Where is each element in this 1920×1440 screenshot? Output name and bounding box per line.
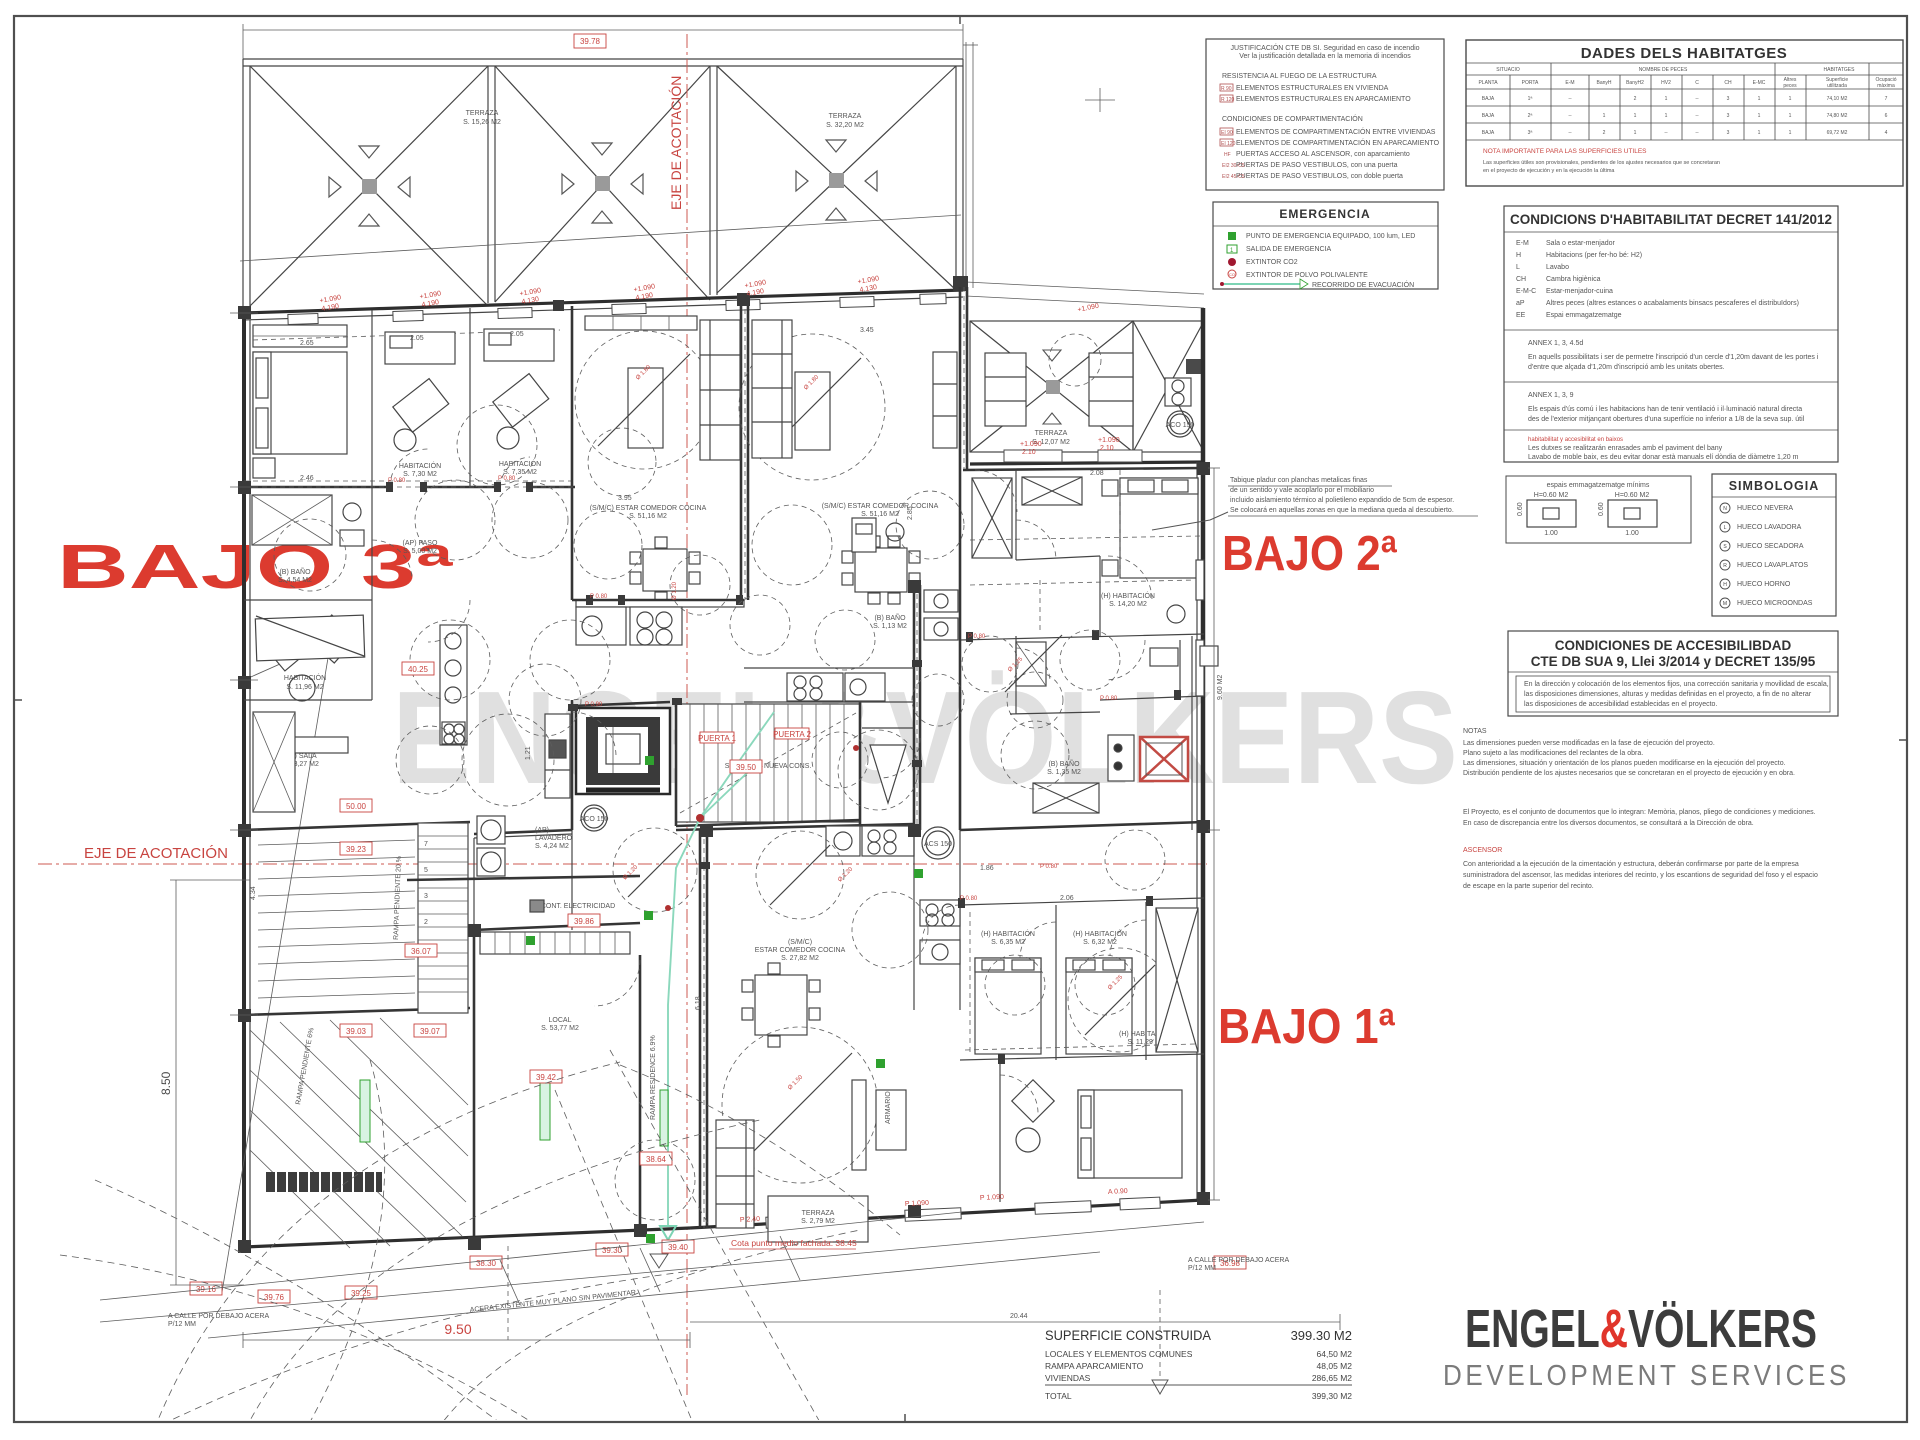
svg-text:HUECO HORNO: HUECO HORNO — [1737, 581, 1791, 588]
svg-text:SUPERFICIE CONSTRUIDA: SUPERFICIE CONSTRUIDA — [1045, 1328, 1211, 1343]
svg-text:+1.090: +1.090 — [1098, 437, 1120, 444]
svg-text:(H) HABITACIÓN: (H) HABITACIÓN — [981, 929, 1035, 938]
svg-text:peces: peces — [1783, 83, 1797, 89]
svg-text:ACO 150: ACO 150 — [1166, 422, 1195, 429]
svg-text:VIVIENDAS: VIVIENDAS — [1045, 1373, 1091, 1383]
svg-text:E-M: E-M — [1516, 240, 1529, 247]
svg-text:L: L — [1516, 264, 1520, 271]
svg-text:2.46: 2.46 — [300, 475, 314, 482]
svg-text:(S/M/C) ESTAR COMEDOR COCINA: (S/M/C) ESTAR COMEDOR COCINA — [590, 505, 707, 512]
svg-text:(H) HABITACIÓN: (H) HABITACIÓN — [1073, 929, 1127, 938]
svg-text:0.60: 0.60 — [1598, 502, 1605, 516]
svg-text:P/12 MM: P/12 MM — [168, 1321, 196, 1328]
svg-text:S. 53,77 M2: S. 53,77 M2 — [541, 1025, 579, 1032]
svg-text:--: -- — [1695, 130, 1699, 136]
svg-text:R 120: R 120 — [1221, 97, 1235, 103]
svg-text:TERRAZA: TERRAZA — [802, 1210, 835, 1217]
svg-text:1.00: 1.00 — [1625, 530, 1639, 537]
svg-text:PUERTAS ACCESO AL ASCENSOR, co: PUERTAS ACCESO AL ASCENSOR, con aparcami… — [1236, 151, 1410, 158]
svg-text:Habitacions (per fer-ho bé: H2: Habitacions (per fer-ho bé: H2) — [1546, 252, 1642, 259]
svg-text:BAJA: BAJA — [1482, 130, 1495, 136]
svg-text:(B) BAÑO: (B) BAÑO — [874, 613, 906, 622]
svg-text:Les dutxes se realitzarán enra: Les dutxes se realitzarán enrasades amb … — [1528, 445, 1723, 452]
svg-text:Ø 1.20: Ø 1.20 — [672, 581, 678, 600]
svg-text:Distribución pendiente de los: Distribución pendiente de los ajustes ne… — [1463, 770, 1795, 777]
svg-text:1: 1 — [1665, 96, 1668, 102]
svg-text:P 2.40: P 2.40 — [740, 1216, 761, 1224]
svg-text:Espai emmagatzematge: Espai emmagatzematge — [1546, 312, 1622, 319]
svg-text:Se colocará en aquellas zonas: Se colocará en aquellas zonas en que la … — [1230, 507, 1454, 514]
svg-text:utilitzada: utilitzada — [1827, 83, 1847, 89]
svg-text:JUSTIFICACIÓN CTE DB SI. Segur: JUSTIFICACIÓN CTE DB SI. Seguridad en ca… — [1230, 43, 1419, 52]
svg-text:aP: aP — [1516, 300, 1525, 307]
svg-text:--: -- — [1568, 113, 1572, 119]
svg-text:39.07: 39.07 — [420, 1027, 441, 1036]
svg-text:RAMPA RESIDENCE 6.9%: RAMPA RESIDENCE 6.9% — [650, 1035, 657, 1120]
svg-text:P 0.80: P 0.80 — [960, 896, 978, 902]
svg-text:Altres peces (altres estances: Altres peces (altres estances o acabalam… — [1546, 300, 1799, 307]
svg-text:ACO 150: ACO 150 — [580, 816, 609, 823]
svg-text:50.00: 50.00 — [346, 802, 367, 811]
svg-text:EMERGENCIA: EMERGENCIA — [1279, 207, 1370, 221]
svg-text:+1.090: +1.090 — [1020, 441, 1042, 448]
svg-text:ARMARIO: ARMARIO — [885, 1091, 892, 1124]
svg-text:las disposiciones dimensiones,: las disposiciones dimensiones, alturas y… — [1524, 691, 1812, 698]
svg-text:ESTAR COMEDOR COCINA: ESTAR COMEDOR COCINA — [755, 947, 846, 954]
svg-text:(S/M/C) ESTAR COMEDOR COCINA: (S/M/C) ESTAR COMEDOR COCINA — [822, 503, 939, 510]
svg-text:HUECO MICROONDAS: HUECO MICROONDAS — [1737, 600, 1813, 607]
svg-text:HABITACIÓN: HABITACIÓN — [499, 459, 541, 468]
svg-text:RESISTENCIA AL FUEGO DE LA EST: RESISTENCIA AL FUEGO DE LA ESTRUCTURA — [1222, 73, 1377, 80]
svg-text:R: R — [1723, 563, 1727, 569]
svg-text:CONDICIONES DE COMPARTIMENTACI: CONDICIONES DE COMPARTIMENTACIÓN — [1222, 114, 1363, 123]
svg-text:P 0.90: P 0.90 — [585, 702, 603, 708]
svg-text:P 0.80: P 0.80 — [590, 594, 608, 600]
svg-text:Sala o estar-menjador: Sala o estar-menjador — [1546, 240, 1616, 247]
svg-text:39.23: 39.23 — [346, 845, 367, 854]
svg-text:BAJA: BAJA — [1482, 113, 1495, 119]
svg-text:1: 1 — [1758, 113, 1761, 119]
svg-text:Las dimensiones pueden verse m: Las dimensiones pueden verse modificadas… — [1463, 740, 1715, 747]
svg-text:3: 3 — [1727, 113, 1730, 119]
svg-text:S. 11,96 M2: S. 11,96 M2 — [286, 684, 323, 691]
svg-text:TERRAZA: TERRAZA — [829, 113, 862, 120]
svg-text:S. 15,26 M2: S. 15,26 M2 — [463, 119, 501, 126]
svg-text:Con anterioridad a la ejecució: Con anterioridad a la ejecución de la ci… — [1463, 861, 1799, 868]
svg-text:(H) HABITACIÓN: (H) HABITACIÓN — [1101, 591, 1155, 600]
svg-text:BAJA: BAJA — [1482, 96, 1495, 102]
svg-text:1: 1 — [1603, 113, 1606, 119]
svg-text:399.30 M2: 399.30 M2 — [1291, 1328, 1352, 1343]
svg-text:El Proyecto, es el conjunto de: El Proyecto, es el conjunto de documento… — [1463, 809, 1816, 816]
svg-text:2ª: 2ª — [1528, 113, 1533, 119]
svg-text:HABITATGES: HABITATGES — [1824, 67, 1856, 73]
svg-text:PUERTAS DE PASO VESTIBULOS, co: PUERTAS DE PASO VESTIBULOS, con doble pu… — [1236, 173, 1403, 180]
svg-text:2.10: 2.10 — [1100, 445, 1114, 452]
svg-text:1ª: 1ª — [1528, 96, 1533, 102]
svg-text:SALIDA DE EMERGENCIA: SALIDA DE EMERGENCIA — [1246, 246, 1332, 253]
svg-text:CONDICIONS D'HABITABILITAT DEC: CONDICIONS D'HABITABILITAT DECRET 141/20… — [1510, 212, 1832, 227]
svg-text:3.45: 3.45 — [860, 327, 874, 334]
svg-text:S. 14,20 M2: S. 14,20 M2 — [1109, 601, 1147, 608]
svg-text:1: 1 — [1758, 130, 1761, 136]
svg-text:En aquells possibilitats i ser: En aquells possibilitats i ser de permet… — [1528, 354, 1819, 361]
svg-text:CH: CH — [1724, 80, 1732, 86]
svg-text:2.85: 2.85 — [907, 506, 914, 520]
svg-text:Plano sujeto a las modificacio: Plano sujeto a las modificaciones del re… — [1463, 750, 1643, 757]
svg-text:39.40: 39.40 — [668, 1243, 689, 1252]
svg-text:SIMBOLOGIA: SIMBOLOGIA — [1729, 479, 1820, 493]
svg-text:1: 1 — [1665, 113, 1668, 119]
svg-text:1.00: 1.00 — [1544, 530, 1558, 537]
svg-text:2.05: 2.05 — [410, 335, 424, 342]
svg-text:LOCAL: LOCAL — [549, 1017, 572, 1024]
svg-text:EI 120: EI 120 — [1221, 141, 1236, 147]
svg-text:6: 6 — [1885, 113, 1888, 119]
svg-text:--: -- — [1664, 130, 1668, 136]
svg-text:ELEMENTOS DE COMPARTIMENTACIÓN: ELEMENTOS DE COMPARTIMENTACIÓN ENTRE VIV… — [1236, 127, 1436, 136]
svg-text:En la dirección y colocación d: En la dirección y colocación de los elem… — [1524, 681, 1829, 688]
svg-text:S. 1,13 M2: S. 1,13 M2 — [873, 623, 907, 630]
svg-text:--: -- — [1568, 130, 1572, 136]
svg-text:R 90: R 90 — [1221, 86, 1232, 92]
svg-text:3.95: 3.95 — [618, 495, 632, 502]
svg-text:PORTA: PORTA — [1522, 80, 1539, 86]
svg-text:ACS 150: ACS 150 — [924, 841, 952, 848]
svg-text:1.86: 1.86 — [980, 865, 994, 872]
svg-text:DEVELOPMENT SERVICES: DEVELOPMENT SERVICES — [1443, 1360, 1850, 1392]
svg-text:P 0.80: P 0.80 — [1040, 864, 1058, 870]
svg-text:1: 1 — [1789, 96, 1792, 102]
svg-text:N: N — [1723, 506, 1727, 512]
svg-text:A 0.90: A 0.90 — [1108, 1188, 1128, 1196]
svg-text:4.34: 4.34 — [250, 886, 257, 900]
svg-text:74,80 M2: 74,80 M2 — [1827, 113, 1848, 119]
svg-text:PLANTA: PLANTA — [1478, 80, 1498, 86]
svg-text:BAJO 2ª: BAJO 2ª — [1222, 527, 1398, 581]
svg-text:EJE DE ACOTACIÓN: EJE DE ACOTACIÓN — [84, 845, 228, 862]
svg-text:HUECO SECADORA: HUECO SECADORA — [1737, 543, 1804, 550]
svg-text:Cambra higiènica: Cambra higiènica — [1546, 276, 1601, 283]
svg-text:ELEMENTOS DE COMPARTIMENTACIÓN: ELEMENTOS DE COMPARTIMENTACIÓN EN APARCA… — [1236, 138, 1440, 147]
svg-text:7: 7 — [1885, 96, 1888, 102]
svg-text:399,30 M2: 399,30 M2 — [1312, 1391, 1352, 1401]
svg-text:--: -- — [1695, 96, 1699, 102]
svg-text:(B) BAÑO: (B) BAÑO — [279, 567, 311, 576]
svg-text:39.50: 39.50 — [736, 763, 757, 772]
svg-text:EI2 45-C5: EI2 45-C5 — [1222, 174, 1245, 180]
svg-text:20.44: 20.44 — [1010, 1313, 1028, 1320]
svg-text:Estar-menjador-cuina: Estar-menjador-cuina — [1546, 288, 1613, 295]
svg-text:48,05 M2: 48,05 M2 — [1317, 1361, 1353, 1371]
svg-text:CONDICIONES DE ACCESIBILIBDAD: CONDICIONES DE ACCESIBILIBDAD — [1555, 638, 1792, 653]
svg-text:1: 1 — [1758, 96, 1761, 102]
svg-text:HF: HF — [1224, 152, 1231, 158]
svg-text:NOTA IMPORTANTE PARA LAS SUPER: NOTA IMPORTANTE PARA LAS SUPERFICIES UTI… — [1483, 148, 1647, 155]
svg-text:en el proyecto de ejecución y: en el proyecto de ejecución y en la ejec… — [1483, 168, 1615, 174]
svg-text:HUECO LAVADORA: HUECO LAVADORA — [1737, 524, 1802, 531]
svg-text:HABITACIÓN: HABITACIÓN — [284, 673, 326, 682]
svg-text:Tabique pladur con planchas me: Tabique pladur con planchas metalicas fi… — [1230, 477, 1368, 484]
svg-text:Las dimensiones, situación y o: Las dimensiones, situación y orientación… — [1463, 760, 1786, 767]
svg-text:L: L — [1724, 525, 1727, 531]
svg-text:E-M-C: E-M-C — [1516, 288, 1536, 295]
svg-text:Els espais d'ús comú i les hab: Els espais d'ús comú i les habitacions h… — [1528, 406, 1802, 413]
svg-text:màxima: màxima — [1877, 83, 1895, 89]
svg-text:36.07: 36.07 — [411, 947, 432, 956]
svg-text:incluido aislamiento térmico a: incluido aislamiento térmico al polietil… — [1230, 497, 1454, 504]
svg-text:S. 2,79 M2: S. 2,79 M2 — [801, 1218, 835, 1225]
svg-text:CONT. ELECTRICIDAD: CONT. ELECTRICIDAD — [541, 903, 615, 910]
svg-text:(AP) PASO: (AP) PASO — [403, 540, 438, 547]
svg-text:(AP): (AP) — [535, 827, 549, 834]
svg-text:64,50 M2: 64,50 M2 — [1317, 1349, 1353, 1359]
svg-text:P 0.80: P 0.80 — [388, 478, 406, 484]
svg-text:P 0.80: P 0.80 — [498, 476, 516, 482]
svg-text:espais emmagatzematge mínims: espais emmagatzematge mínims — [1547, 482, 1650, 489]
svg-text:2.05: 2.05 — [510, 331, 524, 338]
svg-text:EXTINTOR CO2: EXTINTOR CO2 — [1246, 259, 1298, 266]
svg-text:69,72 M2: 69,72 M2 — [1827, 130, 1848, 136]
svg-text:38.64: 38.64 — [646, 1155, 667, 1164]
svg-text:2: 2 — [1634, 96, 1637, 102]
svg-text:M: M — [1723, 601, 1727, 607]
svg-text:BanyH2: BanyH2 — [1626, 80, 1644, 86]
svg-text:Lavabo: Lavabo — [1546, 264, 1569, 271]
svg-text:PUERTA 1: PUERTA 1 — [698, 734, 736, 743]
svg-text:las disposiciones de accesibil: las disposiciones de accesibilidad estab… — [1524, 701, 1717, 708]
svg-text:E-M: E-M — [1565, 80, 1574, 86]
svg-text:8.50: 8.50 — [159, 1071, 173, 1095]
svg-text:39.42: 39.42 — [536, 1073, 557, 1082]
svg-text:ASCENSOR: ASCENSOR — [1463, 847, 1502, 854]
svg-text:EXTINTOR DE POLVO POLIVALENTE: EXTINTOR DE POLVO POLIVALENTE — [1246, 272, 1368, 279]
svg-text:Lavabo de moble baix, es deu e: Lavabo de moble baix, es deu evitar dona… — [1528, 454, 1799, 461]
svg-text:habitabilitat y accesibilitat: habitabilitat y accesibilitat en baixos — [1528, 437, 1623, 443]
svg-text:EI2 30-C5: EI2 30-C5 — [1222, 163, 1245, 169]
svg-text:BanyH: BanyH — [1596, 80, 1611, 86]
svg-text:39.78: 39.78 — [580, 37, 601, 46]
svg-text:Ver la justificación detallad: Ver la justificación detallada en la mem… — [1239, 53, 1411, 60]
svg-text:40.25: 40.25 — [408, 665, 429, 674]
svg-text:ANNEX 1, 3, 4.5d: ANNEX 1, 3, 4.5d — [1528, 340, 1583, 347]
svg-text:39.86: 39.86 — [574, 917, 595, 926]
svg-text:A CALLE POR DEBAJO ACERA: A CALLE POR DEBAJO ACERA — [168, 1313, 269, 1320]
svg-text:EE: EE — [1516, 312, 1526, 319]
svg-text:ELEMENTOS ESTRUCTURALES EN APA: ELEMENTOS ESTRUCTURALES EN APARCAMIENTO — [1236, 96, 1411, 103]
svg-text:PUERTAS DE PASO VESTIBULOS, co: PUERTAS DE PASO VESTIBULOS, con una puer… — [1236, 162, 1398, 169]
svg-text:HV2: HV2 — [1661, 80, 1671, 86]
svg-text:PUERTA 2: PUERTA 2 — [773, 730, 811, 739]
svg-text:9.60 M2: 9.60 M2 — [1217, 675, 1224, 700]
svg-text:1: 1 — [1634, 113, 1637, 119]
svg-text:S. 5,00 M2: S. 5,00 M2 — [403, 548, 437, 555]
svg-text:S. 27,82 M2: S. 27,82 M2 — [781, 955, 819, 962]
svg-text:0.60: 0.60 — [1517, 502, 1524, 516]
svg-text:S. 4,24 M2: S. 4,24 M2 — [535, 843, 569, 850]
svg-text:Las superficies útiles son pro: Las superficies útiles son provisionales… — [1483, 160, 1720, 166]
svg-text:ELEMENTOS ESTRUCTURALES EN VIV: ELEMENTOS ESTRUCTURALES EN VIVIENDA — [1236, 85, 1389, 92]
svg-text:TOTAL: TOTAL — [1045, 1391, 1072, 1401]
svg-text:SITUACIO: SITUACIO — [1496, 67, 1520, 73]
svg-text:1.21: 1.21 — [525, 746, 532, 760]
svg-text:H=0.60 M2: H=0.60 M2 — [1615, 492, 1650, 499]
svg-text:CH: CH — [1516, 276, 1526, 283]
svg-text:ENGEL&VÖLKERS: ENGEL&VÖLKERS — [1465, 1299, 1817, 1359]
svg-text:H: H — [1516, 252, 1521, 259]
svg-text:3: 3 — [424, 893, 428, 900]
svg-text:A CALLE POR DEBAJO ACERA: A CALLE POR DEBAJO ACERA — [1188, 1257, 1289, 1264]
svg-text:P 0.80: P 0.80 — [968, 634, 986, 640]
svg-text:P 1.090: P 1.090 — [905, 1200, 929, 1208]
svg-text:TERRAZA: TERRAZA — [1035, 430, 1068, 437]
svg-text:En caso de discrepancia entre: En caso de discrepancia entre los divers… — [1463, 820, 1754, 827]
svg-text:1: 1 — [1789, 130, 1792, 136]
svg-text:2.08: 2.08 — [1090, 470, 1104, 477]
svg-text:7: 7 — [424, 841, 428, 848]
svg-text:RAMPA APARCAMIENTO: RAMPA APARCAMIENTO — [1045, 1361, 1144, 1371]
svg-text:--: -- — [1695, 113, 1699, 119]
svg-text:2.06: 2.06 — [1060, 895, 1074, 902]
svg-text:NOTAS: NOTAS — [1463, 728, 1487, 735]
svg-text:2: 2 — [424, 919, 428, 926]
svg-text:TERRAZA: TERRAZA — [466, 110, 499, 117]
svg-text:HUECO LAVAPLATOS: HUECO LAVAPLATOS — [1737, 562, 1808, 569]
svg-text:(B) BAÑO: (B) BAÑO — [1048, 759, 1080, 768]
svg-text:CTE DB SUA 9, Llei 3/2014 y DE: CTE DB SUA 9, Llei 3/2014 y DECRET 135/9… — [1531, 654, 1816, 669]
svg-text:5: 5 — [424, 867, 428, 874]
svg-text:S. 7,30 M2: S. 7,30 M2 — [403, 471, 437, 478]
svg-text:286,65 M2: 286,65 M2 — [1312, 1373, 1352, 1383]
svg-text:H=0.60 M2: H=0.60 M2 — [1534, 492, 1569, 499]
svg-text:S. 4,54 M2: S. 4,54 M2 — [278, 577, 312, 584]
svg-text:PUNTO DE EMERGENCIA EQUIPADO,: PUNTO DE EMERGENCIA EQUIPADO, 100 lum, L… — [1246, 233, 1415, 240]
svg-text:3: 3 — [1727, 130, 1730, 136]
svg-text:4: 4 — [1885, 130, 1888, 136]
svg-text:1: 1 — [1634, 130, 1637, 136]
svg-text:2.10: 2.10 — [1022, 449, 1036, 456]
svg-text:P/12 MM: P/12 MM — [1188, 1265, 1216, 1272]
svg-text:HABITACIÓN: HABITACIÓN — [399, 461, 441, 470]
svg-text:DADES DELS HABITATGES: DADES DELS HABITATGES — [1581, 45, 1788, 62]
svg-text:suministradora del ascensor, l: suministradora del ascensor, las medidas… — [1463, 872, 1818, 879]
svg-text:S. 51,16 M2: S. 51,16 M2 — [629, 513, 667, 520]
svg-text:2.65: 2.65 — [300, 340, 314, 347]
svg-text:74,10 M2: 74,10 M2 — [1827, 96, 1848, 102]
svg-text:C: C — [1695, 80, 1699, 86]
svg-text:1: 1 — [1789, 113, 1792, 119]
svg-text:P 1.090: P 1.090 — [980, 1194, 1004, 1202]
svg-text:P 0.80: P 0.80 — [1100, 696, 1118, 702]
svg-text:E-MC: E-MC — [1753, 80, 1766, 86]
svg-text:BAJO 1ª: BAJO 1ª — [1218, 1000, 1396, 1054]
svg-text:39.76: 39.76 — [264, 1293, 285, 1302]
svg-text:LOCALES Y ELEMENTOS COMUNES: LOCALES Y ELEMENTOS COMUNES — [1045, 1349, 1193, 1359]
svg-text:--: -- — [1568, 96, 1572, 102]
svg-text:3: 3 — [1727, 96, 1730, 102]
svg-text:H: H — [1723, 582, 1727, 588]
svg-text:de escape en la parte superior: de escape en la parte superior del recin… — [1463, 883, 1594, 890]
svg-text:CO: CO — [1229, 272, 1235, 277]
svg-text:EJE DE ACOTACIÓN: EJE DE ACOTACIÓN — [668, 76, 684, 210]
svg-text:LAVADERO: LAVADERO — [535, 835, 573, 842]
svg-text:des de l'exterior mitjançant o: des de l'exterior mitjançant obertures d… — [1528, 416, 1805, 423]
svg-text:ANNEX 1, 3, 9: ANNEX 1, 3, 9 — [1528, 392, 1574, 399]
svg-text:NOMBRE DE PECES: NOMBRE DE PECES — [1639, 67, 1688, 73]
svg-text:(S/M/C): (S/M/C) — [788, 939, 812, 946]
svg-text:6.18: 6.18 — [695, 996, 702, 1010]
svg-text:3ª: 3ª — [1528, 130, 1533, 136]
svg-text:de un sentido y vale acoplarlo: de un sentido y vale acoplarlo por el mo… — [1230, 487, 1374, 494]
svg-text:S. 32,20 M2: S. 32,20 M2 — [826, 122, 864, 129]
svg-text:S. 7,35 M2: S. 7,35 M2 — [503, 469, 537, 476]
svg-text:S. 51,16 M2: S. 51,16 M2 — [861, 511, 899, 518]
svg-text:2: 2 — [1603, 130, 1606, 136]
svg-text:9.50: 9.50 — [444, 1321, 471, 1337]
svg-text:EI 90: EI 90 — [1221, 130, 1233, 136]
svg-text:HUECO NEVERA: HUECO NEVERA — [1737, 505, 1793, 512]
svg-text:RECORRIDO DE EVACUACIÓN: RECORRIDO DE EVACUACIÓN — [1312, 280, 1414, 289]
svg-text:Cota punto medio fachada: 38.4: Cota punto medio fachada: 38.45 — [731, 1238, 857, 1248]
svg-text:39.03: 39.03 — [346, 1027, 367, 1036]
svg-text:d'entre que alçada d'1,20m d'i: d'entre que alçada d'1,20m d'inscripció … — [1528, 364, 1725, 371]
svg-text:S. 6,35 M2: S. 6,35 M2 — [991, 939, 1025, 946]
